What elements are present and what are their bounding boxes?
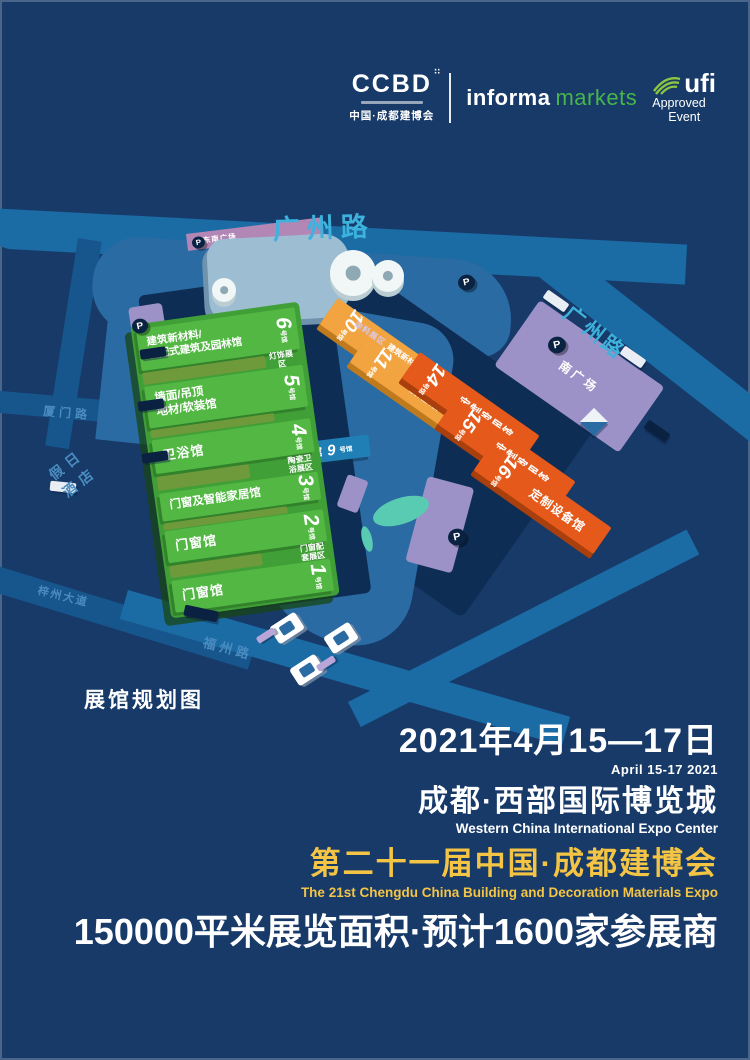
dome-cylinder-small	[212, 278, 236, 302]
hall-1-number: 1号馆	[307, 562, 331, 590]
ufi-event-text: Event	[668, 111, 716, 124]
south-plaza-label: 南广场	[556, 356, 603, 396]
hall-2-label: 门窗馆	[165, 533, 218, 556]
venue-cn: 成都·西部国际博览城	[28, 785, 718, 819]
ccbd-text: CCBD	[352, 70, 432, 98]
forum-hall-suffix: 号馆	[339, 443, 353, 455]
hall-5-number: 5号馆	[280, 373, 304, 401]
ufi-logo: ufi Approved Event	[652, 72, 716, 124]
ccbd-dots-icon: ∷	[434, 68, 441, 76]
road-label-guangzhou-top: 广州路	[272, 204, 375, 247]
ccbd-microtext-bar	[361, 101, 423, 104]
footer-info: 2021年4月15—17日 April 15-17 2021 成都·西部国际博览…	[28, 722, 718, 952]
venue-en: Western China International Expo Center	[28, 821, 718, 836]
date-en: April 15-17 2021	[28, 763, 718, 778]
hotel-label: 假日 酒店	[44, 443, 103, 503]
informa-markets-logo: informa markets	[466, 85, 637, 111]
date-cn: 2021年4月15—17日	[28, 722, 718, 760]
map-tag-dark	[643, 419, 670, 442]
venue-map: 东南广场 南广场 活动论坛馆 9 号馆 建筑新材料/ 装配式建筑及园林馆 6号馆	[0, 180, 750, 720]
map-title: 展馆规划图	[84, 684, 204, 714]
header-logos: CCBD∷ 中国·成都建博会 informa markets ufi Appro…	[349, 72, 716, 124]
ufi-approved-text: Approved	[652, 97, 716, 110]
stats-line: 150000平米展览面积·预计1600家参展商	[28, 912, 718, 952]
ccbd-subtitle: 中国·成都建博会	[349, 108, 434, 123]
hall-4-number: 4号馆	[287, 423, 311, 451]
ufi-swoosh-icon	[652, 73, 682, 95]
dome-cylinder-large	[330, 250, 376, 296]
ccbd-wordmark: CCBD∷	[352, 72, 432, 97]
dome-cylinder-medium	[372, 260, 404, 292]
logo-divider	[449, 73, 451, 123]
hall-3-number: 3号馆	[294, 473, 318, 501]
informa-text: informa	[466, 85, 550, 111]
hall-2-number: 2号馆	[300, 513, 324, 541]
expo-poster: CCBD∷ 中国·成都建博会 informa markets ufi Appro…	[0, 0, 750, 1060]
forum-hall-number: 9	[326, 441, 336, 459]
ccbd-logo: CCBD∷ 中国·成都建博会	[349, 72, 434, 123]
markets-text: markets	[555, 85, 637, 111]
hall-6-number: 6号馆	[272, 316, 296, 344]
ufi-text: ufi	[684, 72, 716, 95]
expo-title-cn: 第二十一届中国·成都建博会	[28, 847, 718, 882]
hall-1-label: 门窗馆	[172, 582, 225, 605]
expo-title-en: The 21st Chengdu China Building and Deco…	[28, 885, 718, 900]
